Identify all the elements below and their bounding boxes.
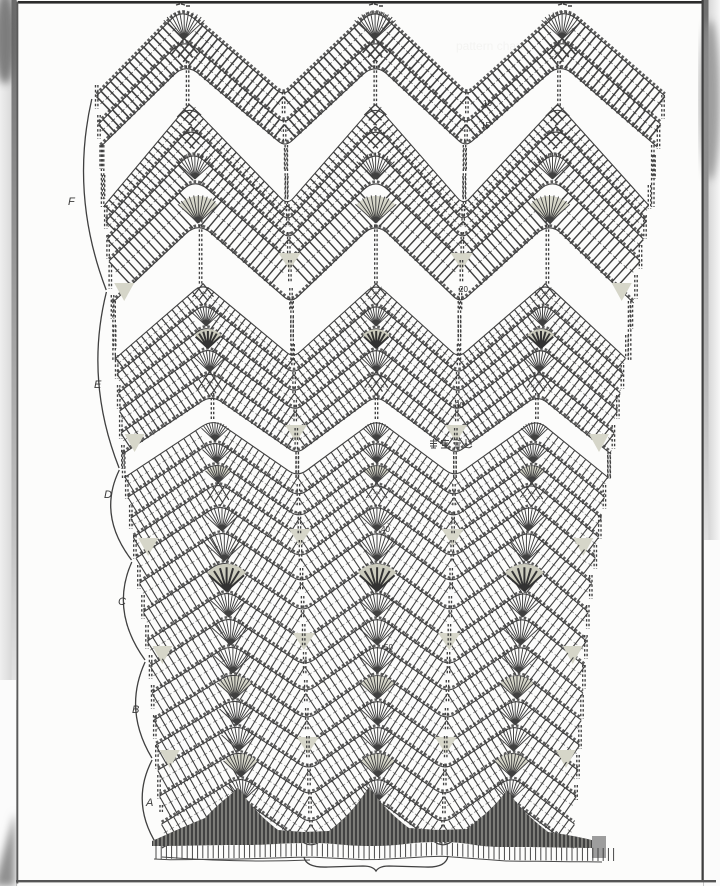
- svg-text:C: C: [118, 596, 126, 608]
- svg-text:E: E: [94, 379, 102, 391]
- svg-text:D: D: [104, 489, 112, 501]
- svg-text:A: A: [145, 797, 153, 809]
- svg-text:20: 20: [459, 285, 468, 294]
- svg-text:pattern chart: pattern chart: [456, 39, 524, 53]
- svg-text:50: 50: [384, 643, 393, 652]
- svg-text:10: 10: [483, 99, 492, 108]
- svg-text:15: 15: [481, 121, 490, 130]
- svg-text:30: 30: [455, 401, 464, 410]
- svg-text:B: B: [132, 704, 139, 716]
- svg-text:40: 40: [381, 525, 390, 534]
